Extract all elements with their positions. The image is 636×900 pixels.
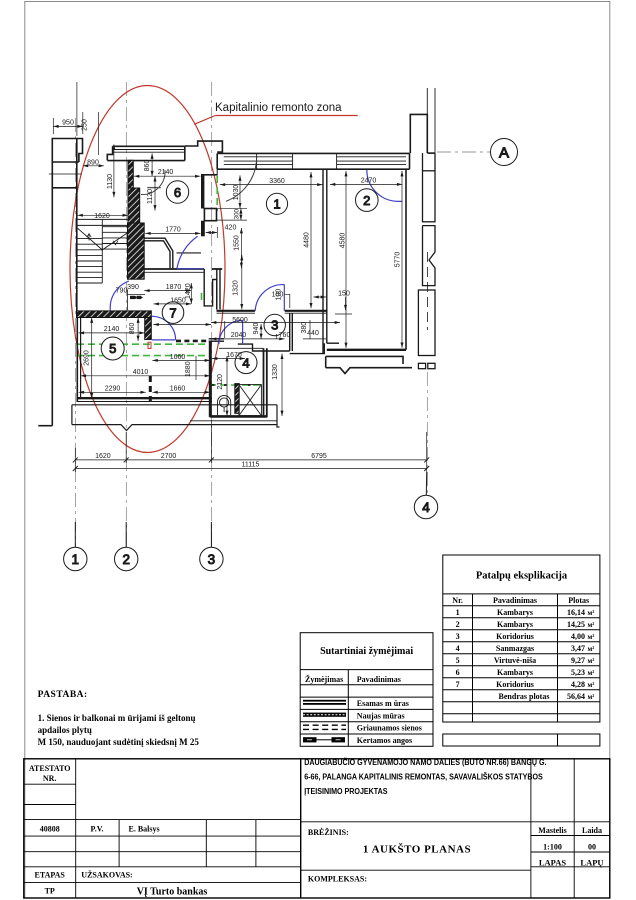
svg-text:BRĖŽINIS:: BRĖŽINIS: [308, 827, 349, 837]
svg-text:Bendras plotas: Bendras plotas [499, 692, 550, 701]
svg-text:250: 250 [82, 119, 89, 131]
svg-text:DAUGIABUČIO GYVENAMOJO NAMO DA: DAUGIABUČIO GYVENAMOJO NAMO DALIES (BUTO… [304, 757, 546, 767]
svg-text:4480: 4480 [304, 232, 311, 248]
svg-text:420: 420 [225, 225, 237, 232]
svg-text:150: 150 [338, 291, 350, 298]
svg-text:Patalpų eksplikacija: Patalpų eksplikacija [476, 571, 568, 582]
svg-text:1030: 1030 [233, 185, 240, 201]
svg-text:760: 760 [279, 332, 291, 339]
svg-text:1 AUKŠTO PLANAS: 1 AUKŠTO PLANAS [363, 843, 471, 856]
svg-text:ATESTATO: ATESTATO [29, 764, 71, 773]
svg-text:Naujas mūras: Naujas mūras [357, 711, 405, 720]
svg-text:2290: 2290 [105, 386, 121, 393]
svg-text:6795: 6795 [311, 453, 327, 460]
svg-text:890: 890 [87, 159, 99, 166]
svg-text:1660: 1660 [170, 354, 186, 361]
svg-text:1330: 1330 [272, 364, 279, 380]
svg-text:11115: 11115 [242, 462, 260, 469]
svg-text:Laida: Laida [582, 826, 602, 835]
svg-text:Esamas m ūras: Esamas m ūras [357, 699, 409, 708]
svg-text:6-66, PALANGA KAPITALINIS REMO: 6-66, PALANGA KAPITALINIS REMONTAS, SAVA… [304, 772, 543, 782]
svg-text:E. Balsys: E. Balsys [129, 825, 160, 834]
svg-text:390: 390 [127, 284, 139, 291]
svg-text:KOMPLEKSAS:: KOMPLEKSAS: [308, 875, 367, 884]
svg-text:5: 5 [456, 656, 460, 665]
svg-text:м²: м² [588, 657, 595, 665]
svg-text:5: 5 [109, 341, 116, 356]
svg-text:40808: 40808 [40, 825, 60, 834]
svg-text:14,25: 14,25 [567, 620, 585, 629]
svg-text:PASTABA:: PASTABA: [38, 690, 88, 700]
svg-text:1650: 1650 [170, 298, 186, 305]
svg-text:2700: 2700 [161, 453, 177, 460]
svg-text:1660: 1660 [170, 386, 186, 393]
svg-text:Sanmazgas: Sanmazgas [496, 644, 534, 653]
svg-text:1870: 1870 [166, 284, 182, 291]
svg-text:940: 940 [253, 323, 260, 335]
svg-text:4,28: 4,28 [571, 680, 585, 689]
svg-text:100: 100 [275, 289, 282, 301]
svg-text:Koridorius: Koridorius [496, 632, 534, 641]
svg-text:3: 3 [271, 318, 278, 333]
svg-text:1770: 1770 [165, 227, 181, 234]
svg-text:1670: 1670 [226, 352, 242, 359]
svg-text:NR.: NR. [43, 774, 57, 783]
svg-text:4: 4 [242, 355, 249, 370]
svg-text:1130: 1130 [107, 174, 114, 189]
svg-text:9,27: 9,27 [571, 656, 585, 665]
svg-text:Pavadinimas: Pavadinimas [493, 596, 537, 605]
svg-text:VĮ Turto bankas: VĮ Turto bankas [137, 887, 208, 898]
svg-text:ETAPAS: ETAPAS [35, 871, 66, 880]
svg-text:5,23: 5,23 [571, 668, 585, 677]
svg-text:950: 950 [62, 120, 74, 127]
svg-text:1: 1 [72, 552, 80, 567]
svg-text:Mastelis: Mastelis [538, 826, 566, 835]
svg-text:4: 4 [456, 644, 460, 653]
svg-text:LAPAS: LAPAS [539, 858, 567, 868]
svg-text:Kambarys: Kambarys [497, 608, 533, 617]
svg-text:4: 4 [422, 500, 430, 515]
svg-text:56,64: 56,64 [567, 692, 585, 701]
svg-text:Kambarys: Kambarys [497, 668, 533, 677]
svg-text:2: 2 [363, 193, 370, 208]
svg-text:2: 2 [456, 620, 460, 629]
svg-text:00: 00 [588, 843, 596, 852]
svg-text:790: 790 [116, 287, 128, 294]
svg-text:Plotas: Plotas [568, 596, 589, 605]
svg-text:Kapitalinio remonto zona: Kapitalinio remonto zona [215, 102, 342, 114]
svg-text:Koridorius: Koridorius [496, 680, 534, 689]
svg-text:1880: 1880 [185, 361, 192, 377]
svg-text:440: 440 [307, 330, 319, 337]
svg-text:м²: м² [588, 609, 595, 617]
svg-text:4,00: 4,00 [571, 632, 585, 641]
svg-text:2140: 2140 [104, 326, 120, 333]
svg-text:3: 3 [208, 552, 216, 567]
svg-text:2690: 2690 [84, 350, 91, 366]
svg-text:1620: 1620 [95, 453, 111, 460]
svg-text:860: 860 [144, 160, 151, 172]
svg-text:M 150, nauduojant sudėtinį ski: M 150, nauduojant sudėtinį skiedsnį M 25 [38, 737, 200, 747]
svg-text:3: 3 [456, 632, 460, 641]
svg-text:1420: 1420 [185, 283, 192, 299]
svg-text:5770: 5770 [395, 252, 402, 268]
svg-text:860: 860 [129, 323, 136, 335]
svg-text:5600: 5600 [232, 317, 248, 324]
svg-text:2: 2 [122, 552, 130, 567]
svg-text:7: 7 [169, 305, 176, 320]
svg-text:TP: TP [45, 887, 55, 896]
svg-text:1320: 1320 [233, 280, 240, 296]
svg-text:3,47: 3,47 [571, 644, 585, 653]
svg-text:4580: 4580 [340, 233, 347, 249]
svg-text:м²: м² [588, 633, 595, 641]
svg-text:м²: м² [588, 681, 595, 689]
svg-text:Pavadinimas: Pavadinimas [357, 675, 401, 684]
svg-text:A: A [499, 145, 509, 162]
svg-text:16,14: 16,14 [567, 608, 585, 617]
svg-text:apdailos plytų: apdailos plytų [38, 725, 92, 735]
svg-text:2140: 2140 [158, 169, 174, 176]
svg-text:1. Sienos ir balkonai m ūrijam: 1. Sienos ir balkonai m ūrijami iš gelto… [38, 713, 196, 723]
svg-text:P.V.: P.V. [91, 825, 104, 834]
svg-text:м²: м² [588, 669, 595, 677]
svg-text:2120: 2120 [217, 374, 224, 390]
svg-text:Griaunamos sienos: Griaunamos sienos [357, 724, 422, 733]
svg-text:6: 6 [174, 185, 181, 200]
svg-text:Kertamos angos: Kertamos angos [357, 736, 412, 745]
svg-text:300: 300 [233, 208, 240, 219]
svg-text:м²: м² [588, 693, 595, 701]
svg-text:Kambarys: Kambarys [497, 620, 533, 629]
svg-text:2470: 2470 [361, 178, 377, 185]
svg-text:м²: м² [588, 645, 595, 653]
svg-text:6: 6 [456, 668, 460, 677]
svg-text:2040: 2040 [231, 332, 247, 339]
svg-text:Žymėjimas: Žymėjimas [305, 674, 343, 684]
svg-text:LAPŲ: LAPŲ [580, 858, 603, 868]
svg-text:1550: 1550 [234, 235, 241, 251]
svg-text:7: 7 [456, 680, 460, 689]
svg-text:1: 1 [273, 197, 280, 212]
svg-text:3360: 3360 [269, 178, 285, 185]
svg-text:м²: м² [588, 621, 595, 629]
svg-text:1: 1 [456, 608, 460, 617]
svg-text:Virtuvė-niša: Virtuvė-niša [494, 656, 536, 665]
svg-text:ĮTEISINIMO PROJEKTAS: ĮTEISINIMO PROJEKTAS [304, 786, 387, 796]
svg-text:1120: 1120 [147, 189, 154, 204]
svg-text:4010: 4010 [133, 369, 149, 376]
svg-text:1:100: 1:100 [543, 843, 562, 852]
svg-text:Nr.: Nr. [452, 596, 463, 605]
svg-text:1620: 1620 [94, 213, 110, 220]
svg-text:Sutartiniai žymėjimai: Sutartiniai žymėjimai [320, 646, 413, 657]
svg-text:380: 380 [301, 322, 308, 334]
svg-text:UŽSAKOVAS:: UŽSAKOVAS: [81, 870, 132, 880]
